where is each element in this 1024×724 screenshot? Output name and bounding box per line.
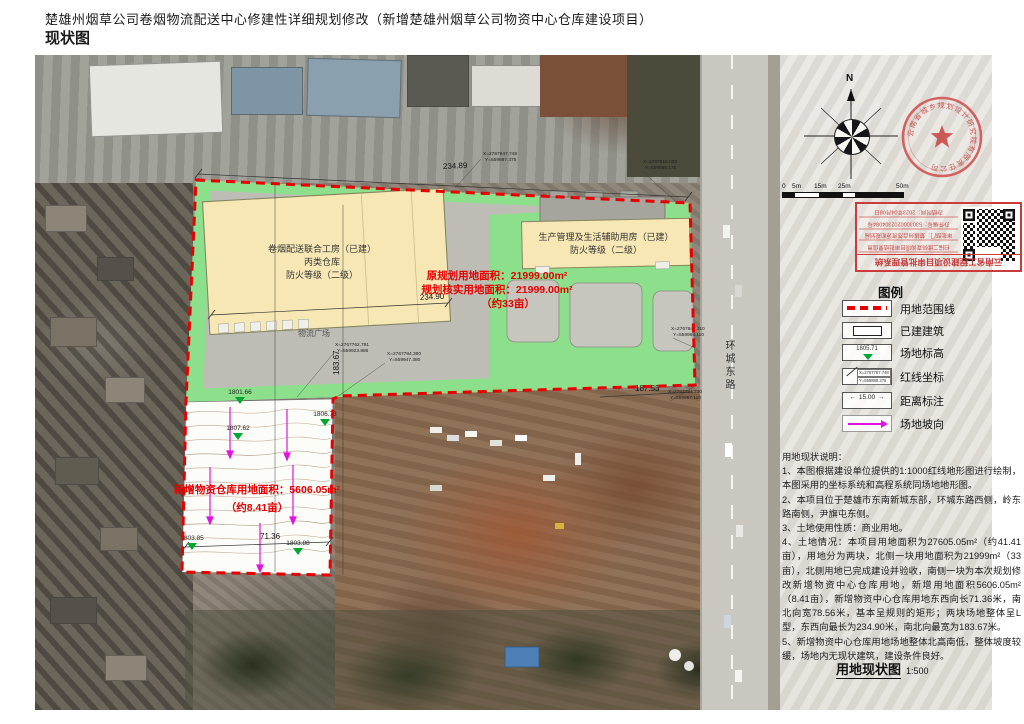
notes-title: 用地现状说明：	[782, 450, 1021, 464]
coordinate-symbol: X=2767767.748 Y=559888.375	[842, 368, 892, 385]
scale-tick: 0	[782, 183, 786, 190]
svg-text:Y=559947.380: Y=559947.380	[389, 357, 421, 363]
legend-item-boundary: 用地范围线	[842, 300, 1020, 318]
elevation-triangle	[863, 354, 873, 360]
plan-overlay: 生产管理及生活辅助用房（已建） 防火等级（二级） 卷烟配送联合工房（已建） 丙类…	[35, 55, 780, 710]
svg-text:原规划用地面积：21999.00m²: 原规划用地面积：21999.00m²	[427, 269, 568, 282]
distance-symbol: ←15.00→	[842, 392, 892, 409]
road-label: 环城东路	[721, 340, 736, 392]
approval-stamp-box: 办结时间：2023年04月08日 办件编号：5303000202304084号 …	[855, 202, 1022, 272]
scale-bar: 0 5m 15m 25m 50m	[782, 183, 914, 199]
legend-item-slope: 场地坡向	[842, 415, 1020, 433]
plan-sheet: 楚雄州烟草公司卷烟物流配送中心修建性详细规划修改（新增楚雄州烟草公司物资中心仓库…	[0, 0, 1024, 724]
building-1-label: 丙类仓库	[304, 256, 340, 267]
north-compass: N	[796, 75, 906, 187]
approval-footer: 云南省工程建设项目审批管理系统	[857, 254, 1020, 269]
svg-text:新增物资仓库用地面积：5606.05m²: 新增物资仓库用地面积：5606.05m²	[174, 483, 341, 496]
elevation-symbol: 1805.71	[842, 344, 892, 361]
scale-bar-segments	[782, 192, 904, 198]
sheet-title: 楚雄州烟草公司卷烟物流配送中心修建性详细规划修改（新增楚雄州烟草公司物资中心仓库…	[45, 9, 653, 28]
approval-line: 办结时间：2023年04月08日	[859, 206, 958, 218]
legend-item-building: 已建建筑	[842, 322, 1020, 340]
building-2-label: 生产管理及生活辅助用房（已建）	[538, 231, 673, 242]
building-1-label: 卷烟配送联合工房（已建）	[268, 243, 376, 254]
scale-tick: 15m	[814, 183, 827, 190]
scale-tick: 25m	[838, 183, 851, 190]
approval-line: 审批部门：楚雄州自然资源和规划局	[859, 229, 958, 241]
notes-item: 3、土地使用性质：商业用地。	[782, 521, 1021, 535]
notes-item: 4、土地情况：本项目用地面积为27605.05m²（约41.41亩），用地分为两…	[782, 535, 1021, 634]
dim-south: 71.36	[260, 532, 281, 541]
legend-item-elevation: 1805.71 场地标高	[842, 344, 1020, 362]
blue-shed	[505, 647, 539, 667]
approval-line: 扫描二维码查询项目审批结果信息	[859, 241, 958, 253]
svg-text:X=2767762.791: X=2767762.791	[335, 342, 369, 348]
svg-text:（约8.41亩）: （约8.41亩）	[226, 501, 288, 514]
scale-tick: 50m	[896, 183, 909, 190]
svg-text:（约33亩）: （约33亩）	[481, 297, 535, 310]
compass-rosette	[834, 119, 870, 155]
dim-top: 234.89	[443, 161, 468, 171]
site-notes: 用地现状说明： 1、本图根据建设单位提供的1:1000红线地形图进行绘制，本图采…	[782, 450, 1021, 663]
north-arrow	[847, 89, 855, 101]
drawing-scale: 1:500	[906, 666, 929, 676]
svg-text:Y=559967.110: Y=559967.110	[670, 395, 701, 401]
svg-text:1803.88: 1803.88	[286, 540, 310, 547]
approval-text-column: 办结时间：2023年04月08日 办件编号：5303000202304084号 …	[859, 206, 958, 250]
notes-item: 1、本图根据建设单位提供的1:1000红线地形图进行绘制，本图采用的坐标系统和高…	[782, 464, 1021, 492]
seal-star	[931, 125, 954, 148]
drawing-footer: 用地现状图1:500	[836, 659, 929, 678]
svg-text:X=2767784.230: X=2767784.230	[668, 389, 702, 395]
legend-title: 图例	[878, 282, 903, 301]
svg-text:1807.62: 1807.62	[226, 425, 250, 432]
drawing-name: 用地现状图	[836, 662, 901, 679]
svg-text:Y=559887.375: Y=559887.375	[485, 157, 517, 163]
slope-symbol	[842, 415, 892, 432]
svg-text:X=2767784.380: X=2767784.380	[387, 351, 421, 357]
svg-text:规划核实用地面积：21999.00m²: 规划核实用地面积：21999.00m²	[421, 283, 573, 296]
svg-text:Y=559923.886: Y=559923.886	[337, 348, 369, 354]
north-letter: N	[846, 73, 853, 84]
legend-item-coordinate: X=2767767.748 Y=559888.375 红线坐标	[842, 368, 1020, 386]
building-symbol	[842, 322, 892, 339]
svg-text:X=2767947.748: X=2767947.748	[483, 151, 517, 157]
plaza-label: 物流广场	[298, 328, 330, 338]
sheet-subtitle: 现状图	[45, 27, 90, 48]
svg-text:X=2767847.110: X=2767847.110	[671, 326, 705, 332]
approval-line: 办件编号：5303000202304084号	[859, 218, 958, 230]
legend-item-distance: ←15.00→ 距离标注	[842, 392, 1020, 410]
svg-text:1801.66: 1801.66	[228, 389, 252, 396]
boundary-symbol	[842, 300, 892, 317]
notes-item: 2、本项目位于楚雄市东南新城东部，环城东路西侧，岭东路南侧，尹旗屯东侧。	[782, 493, 1021, 521]
building-1-label: 防火等级（二级）	[286, 269, 358, 280]
scale-tick: 5m	[792, 183, 801, 190]
svg-text:X=2767919.085: X=2767919.085	[643, 159, 677, 165]
svg-text:Y=559966.170: Y=559966.170	[645, 165, 677, 171]
building-2-label: 防火等级（二级）	[570, 244, 642, 255]
svg-text:Y=559968.110: Y=559968.110	[673, 332, 704, 338]
company-seal: 云南省城乡规划设计研究院有限责任公司	[896, 91, 988, 183]
side-panel: N 0 5m 15m 25m 50m 云南省城乡规划设计研究院有限责任公司 办结…	[778, 55, 1024, 710]
